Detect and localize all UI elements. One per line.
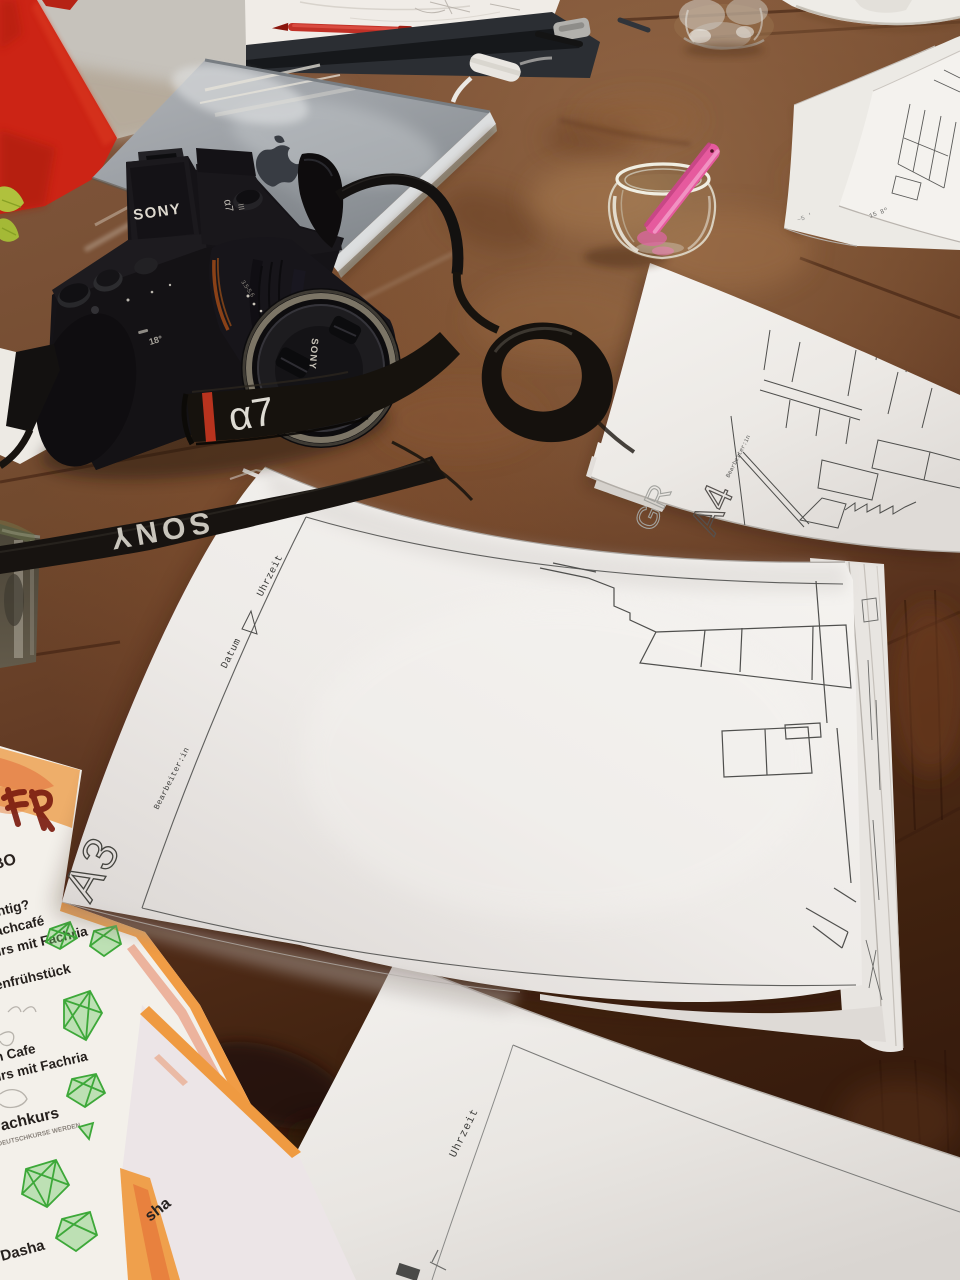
svg-text:α7: α7 — [226, 389, 278, 440]
svg-text:α7: α7 — [221, 198, 235, 212]
